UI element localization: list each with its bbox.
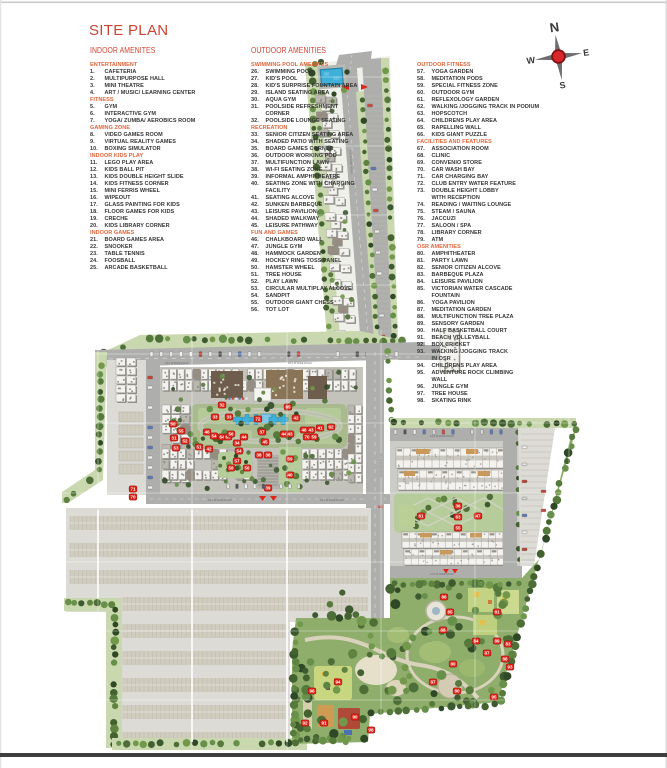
svg-text:36: 36 bbox=[455, 504, 461, 509]
svg-text:55: 55 bbox=[455, 526, 461, 531]
svg-text:38: 38 bbox=[256, 453, 262, 458]
svg-text:18.0 M WIDE ROAD: 18.0 M WIDE ROAD bbox=[320, 498, 344, 502]
svg-text:52: 52 bbox=[182, 439, 188, 444]
svg-text:51: 51 bbox=[196, 445, 202, 450]
svg-text:46: 46 bbox=[204, 430, 210, 435]
svg-text:91: 91 bbox=[321, 721, 327, 726]
svg-text:98: 98 bbox=[368, 728, 374, 733]
svg-text:44: 44 bbox=[241, 435, 247, 440]
svg-text:54: 54 bbox=[236, 449, 242, 454]
svg-text:71: 71 bbox=[130, 487, 136, 492]
svg-text:41: 41 bbox=[317, 426, 323, 431]
svg-text:63: 63 bbox=[455, 515, 461, 520]
svg-text:18.0 M WIDE ROAD: 18.0 M WIDE ROAD bbox=[288, 361, 312, 365]
svg-text:95: 95 bbox=[491, 695, 497, 700]
svg-text:33: 33 bbox=[212, 415, 218, 420]
svg-text:55: 55 bbox=[178, 429, 184, 434]
svg-text:90: 90 bbox=[352, 715, 358, 720]
svg-text:89: 89 bbox=[494, 639, 500, 644]
svg-text:61: 61 bbox=[418, 514, 424, 519]
svg-text:47: 47 bbox=[475, 514, 481, 519]
svg-text:94: 94 bbox=[335, 680, 341, 685]
svg-text:59: 59 bbox=[287, 457, 293, 462]
svg-text:80: 80 bbox=[454, 689, 460, 694]
svg-text:18.0 M WIDE ROAD: 18.0 M WIDE ROAD bbox=[165, 361, 189, 365]
svg-text:43: 43 bbox=[287, 432, 293, 437]
svg-text:81: 81 bbox=[494, 610, 500, 615]
svg-text:57: 57 bbox=[234, 459, 240, 464]
svg-text:72: 72 bbox=[255, 417, 261, 422]
svg-text:12.0 M WIDE ROAD: 12.0 M WIDE ROAD bbox=[430, 572, 454, 576]
svg-text:88: 88 bbox=[440, 628, 446, 633]
svg-text:62: 62 bbox=[328, 425, 334, 430]
svg-text:42: 42 bbox=[293, 416, 299, 421]
svg-text:87: 87 bbox=[430, 680, 436, 685]
svg-text:33: 33 bbox=[226, 415, 232, 420]
svg-text:50: 50 bbox=[170, 422, 176, 427]
svg-text:87: 87 bbox=[484, 651, 490, 656]
svg-text:92: 92 bbox=[302, 721, 308, 726]
svg-text:56: 56 bbox=[228, 432, 234, 437]
svg-text:70: 70 bbox=[304, 435, 310, 440]
svg-text:58: 58 bbox=[228, 466, 234, 471]
svg-text:80: 80 bbox=[450, 662, 456, 667]
svg-text:86: 86 bbox=[441, 595, 447, 600]
svg-text:85: 85 bbox=[447, 610, 453, 615]
svg-text:70: 70 bbox=[130, 495, 136, 500]
svg-text:83: 83 bbox=[505, 642, 511, 647]
svg-text:32: 32 bbox=[219, 403, 225, 408]
svg-text:42: 42 bbox=[206, 447, 212, 452]
svg-text:96: 96 bbox=[309, 689, 315, 694]
svg-text:37: 37 bbox=[259, 430, 265, 435]
svg-text:48: 48 bbox=[301, 428, 307, 433]
svg-text:43: 43 bbox=[308, 428, 314, 433]
svg-text:18.0 M WIDE ROAD: 18.0 M WIDE ROAD bbox=[208, 498, 232, 502]
svg-text:12.0 M WIDE ROAD: 12.0 M WIDE ROAD bbox=[430, 434, 454, 438]
svg-text:36: 36 bbox=[265, 453, 271, 458]
svg-text:53: 53 bbox=[173, 446, 179, 451]
svg-text:54: 54 bbox=[211, 434, 217, 439]
svg-text:45: 45 bbox=[262, 440, 268, 445]
svg-text:59: 59 bbox=[311, 435, 317, 440]
svg-text:88: 88 bbox=[502, 657, 508, 662]
svg-text:31: 31 bbox=[171, 436, 177, 441]
svg-text:84: 84 bbox=[473, 639, 479, 644]
svg-text:34: 34 bbox=[234, 441, 240, 446]
svg-text:39: 39 bbox=[265, 486, 271, 491]
svg-text:56: 56 bbox=[244, 466, 250, 471]
svg-text:85: 85 bbox=[285, 405, 291, 410]
svg-text:40: 40 bbox=[287, 473, 293, 478]
svg-text:93: 93 bbox=[507, 665, 513, 670]
